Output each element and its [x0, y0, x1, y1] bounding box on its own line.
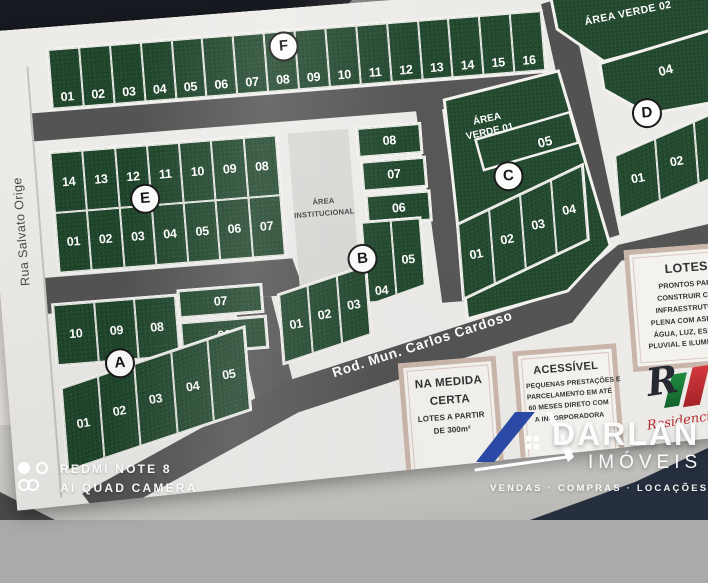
lot-cell: 14: [50, 151, 87, 213]
lot-cell: 05: [184, 200, 221, 262]
lot-cell: 03: [119, 205, 156, 267]
lot-cell: 05: [171, 38, 206, 99]
lot-cell: 01: [48, 48, 83, 109]
lot-cell: 04: [171, 340, 214, 434]
lot-cell: 03: [110, 43, 145, 104]
block-b-lot08: 08: [355, 122, 423, 159]
camera-watermark-icon: [16, 460, 62, 496]
lot-cell: 05: [207, 328, 250, 422]
lot-cell: 16: [510, 11, 545, 72]
lot-cell: 12: [387, 21, 422, 82]
info-box-acessivel-title: ACESSÍVEL: [524, 359, 607, 377]
block-e: 14 13 12 11 10 09 08 01 02 03 04 05 06 0…: [48, 133, 287, 275]
lot-cell: 07: [179, 285, 263, 317]
lot-cell: 03: [134, 352, 177, 446]
block-b-lot07: 07: [360, 156, 428, 193]
agency-segment: IMÓVEIS: [588, 452, 708, 474]
lot-cell: 14: [448, 16, 483, 77]
lot-cell: 01: [55, 210, 92, 272]
lot-cell: 10: [53, 302, 98, 365]
lot-cell: 07: [248, 195, 285, 257]
lot-cell: 09: [294, 28, 329, 89]
lot-cell: 09: [211, 138, 248, 200]
camera-lens-ring-icon: [36, 462, 48, 474]
camera-lens-filled-icon: [18, 462, 30, 474]
house-window: [526, 436, 531, 441]
lot-cell: 10: [179, 140, 216, 202]
lot-cell: 11: [356, 23, 391, 84]
lot-cell: 07: [233, 33, 268, 94]
lot-cell: 04: [551, 166, 588, 255]
lot-cell: 06: [216, 198, 253, 260]
house-roof-blue: [476, 412, 546, 462]
residencial-logo-monogram: R: [643, 356, 681, 405]
info-box-lotes-title: LOTES: [636, 257, 708, 279]
lot-cell: 13: [418, 18, 453, 79]
lot-cell: 13: [82, 148, 119, 210]
lot-cell: 06: [202, 35, 237, 96]
agency-tagline: VENDAS · COMPRAS · LOCAÇÕES: [490, 483, 708, 494]
lot-cell: 10: [325, 26, 360, 87]
lot-cell: 01: [62, 376, 105, 470]
lot-cell: 08: [357, 124, 421, 157]
lot-cell: 08: [243, 135, 280, 197]
lot-cell: 02: [79, 45, 114, 106]
lot-cell: 03: [336, 266, 370, 343]
agency-name: DARLAN: [552, 416, 708, 453]
camera-watermark-line1: REDMI NOTE 8: [60, 462, 172, 476]
lot-cell: 04: [152, 203, 189, 265]
lot-cell: 04: [141, 40, 176, 101]
infinity-icon: [27, 479, 39, 491]
map-paper: 01 02 03 04 05 06 07 08 09 10 11 12 13 1…: [0, 0, 708, 583]
lot-cell: 15: [479, 14, 514, 75]
info-box-lotes: LOTES PRONTOS PARA CONSTRUIR COM INFRAES…: [624, 241, 708, 372]
lot-cell: 02: [87, 208, 124, 270]
camera-watermark-line2: AI QUAD CAMERA: [60, 481, 197, 495]
lot-cell: 07: [362, 158, 426, 191]
